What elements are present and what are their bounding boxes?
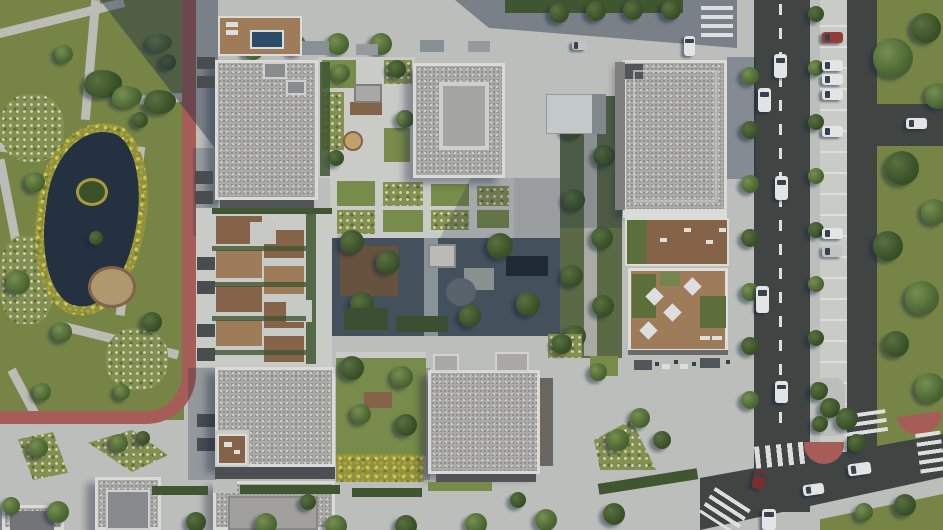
aerial-residential-complex-render [0, 0, 943, 530]
atmosphere-tint [0, 0, 943, 530]
